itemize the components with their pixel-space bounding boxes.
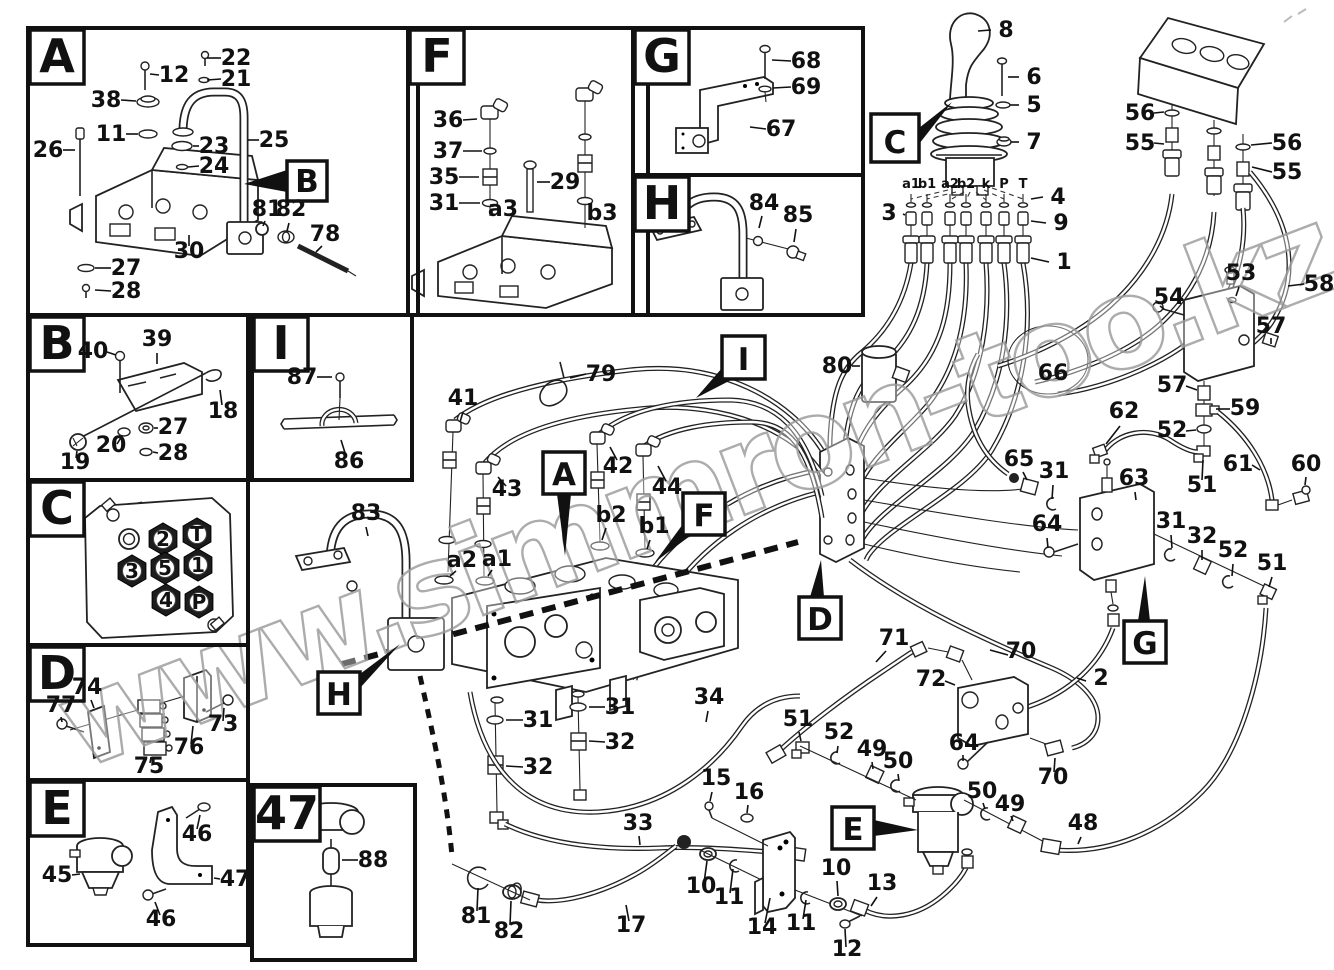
part-label-64: 64 (949, 731, 980, 756)
part-label-82: 82 (494, 919, 525, 944)
part-label-64: 64 (1032, 512, 1063, 537)
section-label-D: D (38, 646, 76, 700)
part-label-51: 51 (1257, 551, 1288, 576)
section-label-H: H (643, 176, 682, 230)
svg-text:I: I (738, 342, 750, 378)
bracket-assembly-b (70, 352, 221, 456)
svg-text:E: E (842, 812, 863, 848)
control-valve-f (412, 216, 612, 308)
part-label-31: 31 (523, 708, 554, 733)
part-label-15: 15 (701, 766, 732, 791)
svg-text:1: 1 (191, 553, 205, 577)
part-label-25: 25 (259, 128, 290, 153)
part-label-20: 20 (96, 433, 127, 458)
part-label-a2: a2 (447, 548, 477, 573)
corner-mark (1284, 9, 1306, 22)
part-label-80: 80 (822, 354, 853, 379)
section-label-E: E (41, 781, 72, 835)
section-I: I (252, 315, 412, 480)
part-label-26: 26 (33, 138, 64, 163)
part-label-27: 27 (158, 415, 189, 440)
return-filter-area (766, 642, 1061, 874)
part-label-3: 3 (881, 201, 896, 226)
part-label-82: 82 (276, 197, 307, 222)
svg-text:2: 2 (156, 527, 170, 551)
part-label-70: 70 (1038, 765, 1069, 790)
part-label-13: 13 (867, 871, 898, 896)
part-label-57: 57 (1157, 373, 1188, 398)
part-label-55: 55 (1125, 131, 1156, 156)
section-label-C: C (40, 481, 74, 535)
part-label-45: 45 (42, 863, 73, 888)
filter-assembly-e (70, 803, 212, 900)
callout-g-main: G (1124, 576, 1166, 663)
part-label-83: 83 (351, 501, 382, 526)
svg-text:F: F (693, 498, 714, 534)
part-label-19: 19 (60, 450, 91, 475)
part-label-1: 1 (1056, 250, 1071, 275)
part-label-58: 58 (1304, 272, 1334, 297)
parts-diagram-page: www.simmron-too.kz AFGHBICDE47 2T3514P a… (0, 0, 1334, 970)
part-label-42: 42 (603, 454, 634, 479)
part-label-33: 33 (623, 811, 654, 836)
svg-text:P: P (999, 177, 1009, 192)
part-label-70: 70 (1006, 639, 1037, 664)
part-label-74: 74 (72, 675, 103, 700)
part-label-4: 4 (1050, 185, 1065, 210)
svg-text:5: 5 (158, 556, 172, 580)
part-label-76: 76 (174, 735, 205, 760)
part-label-5: 5 (1026, 93, 1041, 118)
svg-text:4: 4 (159, 588, 173, 612)
part-label-68: 68 (791, 49, 822, 74)
joystick-port-T: T (1015, 177, 1031, 263)
bottom-hoses (452, 802, 973, 928)
svg-text:T: T (1019, 177, 1028, 192)
part-label-63: 63 (1119, 466, 1150, 491)
part-label-62: 62 (1109, 399, 1140, 424)
joystick-port-b1: b1 (918, 177, 936, 263)
section-label-B: B (39, 316, 74, 370)
part-label-34: 34 (694, 685, 725, 710)
joystick-port-row: a1b1a2b2kPT (902, 177, 1031, 263)
part-label-52: 52 (824, 720, 855, 745)
svg-text:3: 3 (125, 559, 139, 583)
part-label-17: 17 (616, 913, 647, 938)
part-label-39: 39 (142, 327, 173, 352)
part-label-48: 48 (1068, 811, 1099, 836)
part-label-86: 86 (334, 449, 365, 474)
part-label-31: 31 (429, 191, 460, 216)
part-label-35: 35 (429, 165, 460, 190)
part-label-72: 72 (916, 667, 947, 692)
part-label-75: 75 (134, 754, 165, 779)
part-label-a1: a1 (482, 547, 512, 572)
part-label-78: 78 (310, 222, 341, 247)
part-label-12: 12 (159, 63, 190, 88)
callout-d-main: D (799, 560, 841, 639)
part-label-b3: b3 (586, 201, 617, 226)
part-label-40: 40 (78, 339, 109, 364)
part-label-44: 44 (652, 475, 683, 500)
part-label-50: 50 (883, 749, 914, 774)
part-label-a3: a3 (488, 197, 518, 222)
part-label-87: 87 (287, 365, 318, 390)
svg-text:T: T (190, 522, 204, 546)
part-label-8: 8 (998, 18, 1013, 43)
part-label-38: 38 (91, 88, 122, 113)
section-label-47: 47 (255, 786, 319, 840)
part-label-54: 54 (1154, 285, 1185, 310)
part-label-36: 36 (433, 108, 464, 133)
part-label-b1: b1 (638, 514, 669, 539)
svg-text:b1: b1 (918, 177, 936, 192)
section-label-A: A (39, 29, 75, 83)
callout-e-main: E (832, 807, 918, 849)
part-label-43: 43 (492, 477, 523, 502)
part-label-71: 71 (879, 626, 910, 651)
svg-text:B: B (295, 164, 319, 200)
joystick-port-P: P (996, 177, 1012, 263)
part-label-32: 32 (1187, 524, 1218, 549)
part-label-51: 51 (783, 707, 814, 732)
part-label-31: 31 (1039, 459, 1070, 484)
part-label-6: 6 (1026, 65, 1041, 90)
part-label-84: 84 (749, 191, 780, 216)
part-label-10: 10 (686, 874, 717, 899)
part-label-28: 28 (158, 441, 189, 466)
part-label-11: 11 (96, 122, 127, 147)
part-label-57: 57 (1256, 314, 1287, 339)
part-label-46: 46 (182, 822, 213, 847)
part-label-7: 7 (1026, 130, 1041, 155)
part-label-46: 46 (146, 907, 177, 932)
part-label-11: 11 (714, 885, 745, 910)
part-label-56: 56 (1125, 101, 1156, 126)
svg-text:D: D (807, 602, 833, 638)
part-label-32: 32 (605, 730, 636, 755)
section-label-G: G (643, 29, 681, 83)
part-label-52: 52 (1218, 538, 1249, 563)
part-label-61: 61 (1223, 452, 1254, 477)
svg-text:A: A (552, 457, 576, 493)
part-label-30: 30 (174, 239, 205, 264)
part-label-2: 2 (1093, 666, 1108, 691)
part-label-69: 69 (791, 75, 822, 100)
part-label-16: 16 (734, 780, 765, 805)
part-label-28: 28 (111, 279, 142, 304)
part-label-21: 21 (221, 67, 252, 92)
part-label-12: 12 (832, 937, 863, 962)
hydraulic-parts-diagram: www.simmron-too.kz AFGHBICDE47 2T3514P a… (0, 0, 1334, 970)
svg-text:b2: b2 (957, 177, 975, 192)
svg-text:H: H (326, 677, 352, 713)
part-label-85: 85 (783, 203, 814, 228)
part-label-73: 73 (208, 712, 239, 737)
part-label-31: 31 (605, 695, 636, 720)
section-label-F: F (421, 29, 452, 83)
part-label-66: 66 (1038, 361, 1069, 386)
part-label-18: 18 (208, 399, 239, 424)
svg-text:P: P (192, 590, 207, 614)
part-label-24: 24 (199, 154, 230, 179)
part-label-53: 53 (1226, 261, 1257, 286)
part-label-59: 59 (1230, 396, 1261, 421)
svg-text:k: k (982, 177, 991, 192)
part-label-51: 51 (1187, 473, 1218, 498)
part-label-79: 79 (586, 362, 617, 387)
part-label-14: 14 (747, 915, 778, 940)
svg-text:C: C (884, 125, 907, 161)
part-label-88: 88 (358, 848, 389, 873)
svg-text:G: G (1132, 626, 1157, 662)
part-label-32: 32 (523, 755, 554, 780)
part-label-60: 60 (1291, 452, 1322, 477)
part-label-49: 49 (995, 792, 1026, 817)
part-label-67: 67 (766, 117, 797, 142)
part-label-11: 11 (786, 911, 817, 936)
part-label-27: 27 (111, 256, 142, 281)
part-label-81: 81 (461, 904, 492, 929)
part-label-52: 52 (1157, 418, 1188, 443)
part-label-65: 65 (1004, 447, 1035, 472)
part-label-37: 37 (433, 139, 464, 164)
section-G: G (633, 28, 863, 175)
part-label-55: 55 (1272, 160, 1303, 185)
part-label-56: 56 (1272, 131, 1303, 156)
section-label-I: I (272, 316, 289, 370)
part-label-29: 29 (550, 170, 581, 195)
part-label-50: 50 (967, 779, 998, 804)
part-label-41: 41 (448, 386, 479, 411)
part-label-9: 9 (1053, 211, 1068, 236)
part-label-31: 31 (1156, 509, 1187, 534)
part-label-b2: b2 (595, 503, 626, 528)
part-label-47: 47 (220, 867, 251, 892)
joystick-port-b2: b2 (957, 177, 975, 263)
part-label-10: 10 (821, 856, 852, 881)
